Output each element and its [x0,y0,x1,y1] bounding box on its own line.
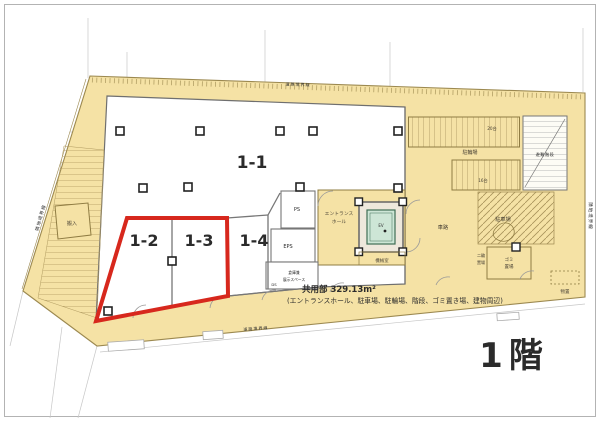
ev-label: EV [378,223,384,228]
unit-1-3-label: 1-3 [185,231,214,250]
storage-label-2: 展示スペース [283,277,306,282]
shed-label: 物置 [561,288,570,295]
entrance-label-1: エントランス [325,211,354,217]
unit-1-2-label: 1-2 [130,231,159,250]
eps-label: EPS [283,244,292,250]
storage-label-1: 倉庫兼 [288,270,300,275]
floor-title: 1階 [479,336,549,376]
two-wheel-label-2: 置場 [477,259,485,265]
column-marker [116,127,124,135]
floor-plan-svg: 搬入 20台 16台 駐輪場 避難階段 駐車場 車路 ゴミ 置場 二輪 置場 物… [0,0,600,421]
car-path-label: 車路 [438,223,449,231]
floor-plan-image: 搬入 20台 16台 駐輪場 避難階段 駐車場 車路 ゴミ 置場 二輪 置場 物… [0,0,600,421]
machine-room-label: 機械室 [375,257,389,264]
column-marker [104,307,112,315]
column-marker [394,184,402,192]
loading-label: 搬入 [67,220,77,227]
column-marker [394,127,402,135]
bike-rack-20 [409,117,520,147]
boundary-top-label: 道路境界線 [285,81,310,88]
stairwell: 避難階段 [523,116,567,190]
bike-rack-16 [452,160,520,190]
entrance-label-2: ホール [332,219,347,225]
rack16-label: 16台 [478,177,488,184]
ev-dot [384,230,387,233]
column-marker [168,257,176,265]
boundary-right-label: 隣地境界線 [587,202,594,230]
two-wheel-label-1: 二輪 [477,252,485,258]
unit-1-1-label: 1-1 [237,153,268,173]
common-area-line1: 共用部 329.13m² [302,284,376,295]
column-marker [309,127,317,135]
column-marker [196,127,204,135]
ds-label: DS [271,282,277,287]
elevator: EV [355,198,407,256]
rack20-label: 20台 [487,125,497,132]
column-marker [296,183,304,191]
ps-label: PS [294,207,300,213]
bike-parking-label: 駐輪場 [462,149,477,156]
column-marker [139,184,147,192]
parking-hatch [478,192,554,244]
stairs-label: 避難階段 [536,151,555,158]
garbage-label-2: 置場 [505,263,514,270]
parking-label: 駐車場 [495,215,511,223]
unit-1-4-label: 1-4 [240,231,269,250]
column-marker [276,127,284,135]
common-area-line2: (エントランスホール、駐車場、駐輪場、階段、ゴミ置き場、建物周辺) [287,296,503,305]
column-marker [184,183,192,191]
garbage-label-1: ゴミ [505,256,514,263]
